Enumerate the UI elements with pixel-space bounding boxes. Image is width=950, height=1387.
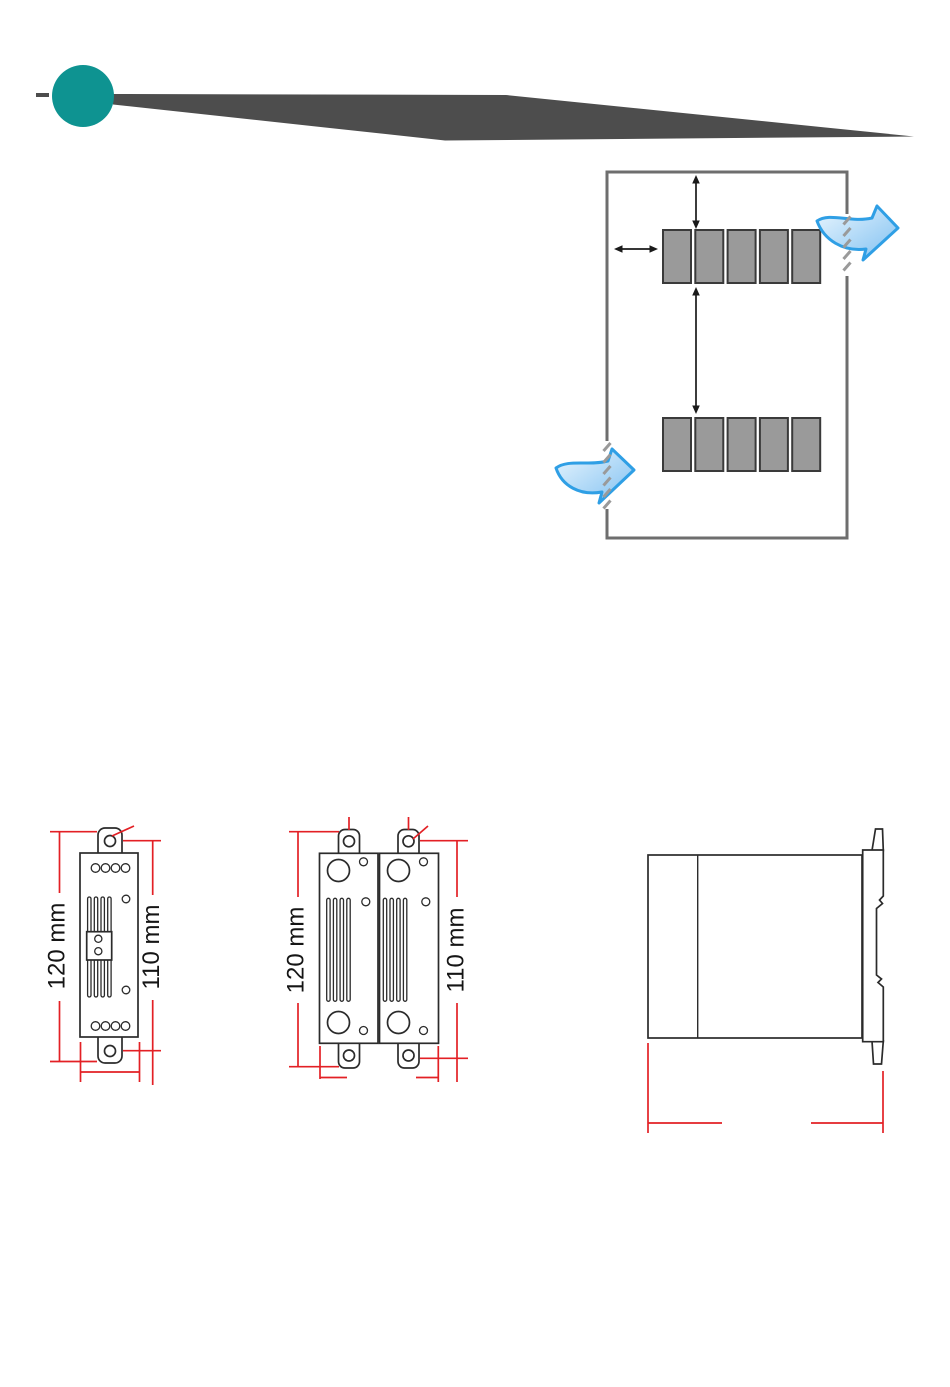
module-block bbox=[728, 418, 756, 471]
clearance-arrow-left bbox=[614, 245, 658, 253]
header-graphic bbox=[36, 65, 914, 141]
tab-hole bbox=[344, 1050, 355, 1061]
module-block bbox=[792, 230, 820, 283]
dimension-label-hole-span-single: 110 mm bbox=[138, 905, 165, 990]
dimension-label-overall-height-pair: 120 mm bbox=[283, 907, 310, 994]
tab-hole bbox=[105, 836, 116, 847]
module-block bbox=[792, 418, 820, 471]
module-block bbox=[760, 418, 788, 471]
document-canvas: 120 mm 110 mm bbox=[0, 0, 950, 1387]
module-block bbox=[663, 230, 691, 283]
enclosure-outline bbox=[607, 172, 847, 538]
airflow-out-arrow bbox=[817, 206, 898, 260]
module-block bbox=[760, 230, 788, 283]
clearance-arrow-top bbox=[692, 175, 700, 229]
mounting-plate-profile bbox=[863, 850, 884, 1042]
mounting-tab-top-edge bbox=[872, 829, 883, 851]
module-row-top bbox=[663, 230, 820, 283]
large-hole bbox=[328, 860, 350, 882]
small-hole bbox=[420, 858, 428, 866]
airflow-in-arrow bbox=[556, 449, 634, 503]
small-hole bbox=[360, 1027, 368, 1035]
small-hole bbox=[422, 898, 430, 906]
header-swoosh bbox=[113, 94, 914, 141]
mounting-tab-bottom-edge bbox=[872, 1041, 883, 1064]
plate-hole bbox=[95, 948, 102, 955]
device-body-right bbox=[380, 853, 439, 1043]
dimension-label-hole-span-pair: 110 mm bbox=[443, 908, 470, 993]
tab-hole bbox=[403, 1050, 414, 1061]
module-block bbox=[695, 418, 723, 471]
drawing-side bbox=[648, 829, 883, 1133]
screw-hole bbox=[122, 895, 130, 903]
airflow-diagram bbox=[556, 172, 898, 538]
small-hole bbox=[420, 1027, 428, 1035]
plate-hole bbox=[95, 935, 102, 942]
tab-hole bbox=[105, 1046, 116, 1057]
dimension-label-overall-height-single: 120 mm bbox=[44, 903, 71, 990]
module-block bbox=[695, 230, 723, 283]
module-block bbox=[728, 230, 756, 283]
small-hole bbox=[362, 898, 370, 906]
small-hole bbox=[360, 858, 368, 866]
large-hole bbox=[388, 860, 410, 882]
large-hole bbox=[388, 1012, 410, 1034]
teal-circle bbox=[52, 65, 114, 127]
large-hole bbox=[328, 1012, 350, 1034]
drawing-front-single: 120 mm 110 mm bbox=[44, 826, 166, 1085]
tab-hole bbox=[344, 836, 355, 847]
screw-hole bbox=[122, 986, 130, 994]
device-body-side bbox=[648, 855, 862, 1038]
drawing-front-pair: 120 mm 110 mm bbox=[283, 817, 470, 1082]
tab-hole bbox=[403, 836, 414, 847]
dimension-lines-side bbox=[648, 1043, 883, 1133]
header-dash bbox=[36, 93, 49, 97]
module-block bbox=[663, 418, 691, 471]
clearance-arrow-between-rows bbox=[692, 287, 700, 414]
page: { "page": { "background": "#ffffff" }, "… bbox=[0, 0, 950, 1387]
module-row-bottom bbox=[663, 418, 820, 471]
